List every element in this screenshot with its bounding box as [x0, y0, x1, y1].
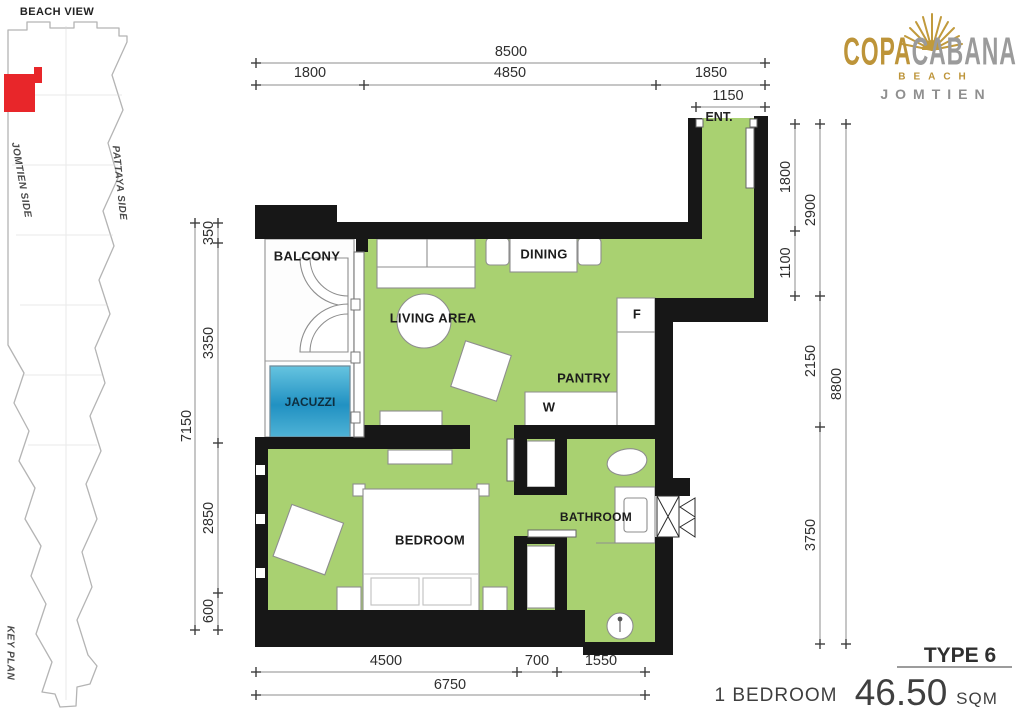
dim-bottom-c: 1550 [585, 653, 617, 669]
room-label-dining: DINING [520, 247, 567, 262]
dim-right-a: 1800 [778, 161, 794, 193]
sofa [377, 239, 475, 288]
dim-top-c: 1850 [695, 65, 727, 81]
bedroom-console [388, 450, 452, 464]
room-label-bathroom: BATHROOM [560, 510, 632, 524]
type-underline [897, 666, 1012, 668]
closet-upper [527, 441, 555, 487]
pillow-left [371, 578, 419, 605]
dim-left-b: 3350 [201, 327, 217, 359]
dim-bottom-b: 700 [525, 653, 549, 669]
dim-bottom-a: 4500 [370, 653, 402, 669]
logo-beach-label: BEACH [898, 72, 974, 83]
label-entrance: ENT. [705, 110, 732, 124]
dim-right-e: 3750 [803, 519, 819, 551]
logo-brand-gray: CABANA [912, 31, 1017, 74]
keyplan-label: KEY PLAN [5, 626, 16, 680]
dim-top-b: 4850 [494, 65, 526, 81]
dim-left-c: 2850 [201, 502, 217, 534]
logo-city-label: JOMTIEN [880, 86, 991, 102]
closet-lower [527, 546, 555, 608]
nightstand-right [483, 587, 507, 612]
room-label-pantry: PANTRY [557, 371, 611, 386]
dim-right-b: 1100 [778, 247, 794, 278]
dim-bottom-total: 6750 [434, 677, 466, 693]
dim-left-d: 600 [201, 599, 217, 623]
dining-chair-right [578, 238, 601, 265]
bedroom-door-leaf [507, 439, 514, 481]
dim-top-a: 1800 [294, 65, 326, 81]
dim-right-c: 2900 [803, 194, 819, 226]
unit-type-label: TYPE 6 [924, 644, 996, 668]
dim-left-total: 7150 [179, 410, 195, 442]
logo-brand: COPACABANA [843, 31, 1017, 76]
label-washer: W [543, 400, 556, 415]
unit-area-value: 46.50 [855, 672, 948, 714]
unit-area-unit: SQM [956, 689, 998, 709]
dim-top-total: 8500 [495, 44, 527, 60]
logo-brand-gold: COPA [843, 31, 911, 74]
pillow-right [423, 578, 471, 605]
dim-left-a: 350 [201, 221, 217, 245]
dim-right-total: 8800 [829, 368, 845, 400]
unit-bedrooms-label: 1 BEDROOM [714, 685, 837, 707]
room-label-jacuzzi: JACUZZI [285, 395, 336, 409]
keyplan-beach-view-label: BEACH VIEW [20, 6, 94, 18]
floorplan-page: BEACH VIEW JOMTIEN SIDE PATTAYA SIDE KEY… [0, 0, 1024, 727]
dining-chair-left [486, 238, 509, 265]
nightstand-left [337, 587, 361, 612]
room-label-bedroom: BEDROOM [395, 533, 465, 548]
dim-right-d: 2150 [803, 345, 819, 377]
bathroom-door-leaf [528, 530, 576, 537]
plan-drawing [0, 0, 1024, 727]
entry-door-leaf [746, 128, 754, 188]
room-label-balcony: BALCONY [274, 249, 340, 264]
room-label-living-area: LIVING AREA [390, 311, 477, 326]
dim-entry-width: 1150 [712, 88, 743, 104]
label-fridge: F [633, 307, 641, 322]
living-console [380, 411, 442, 426]
